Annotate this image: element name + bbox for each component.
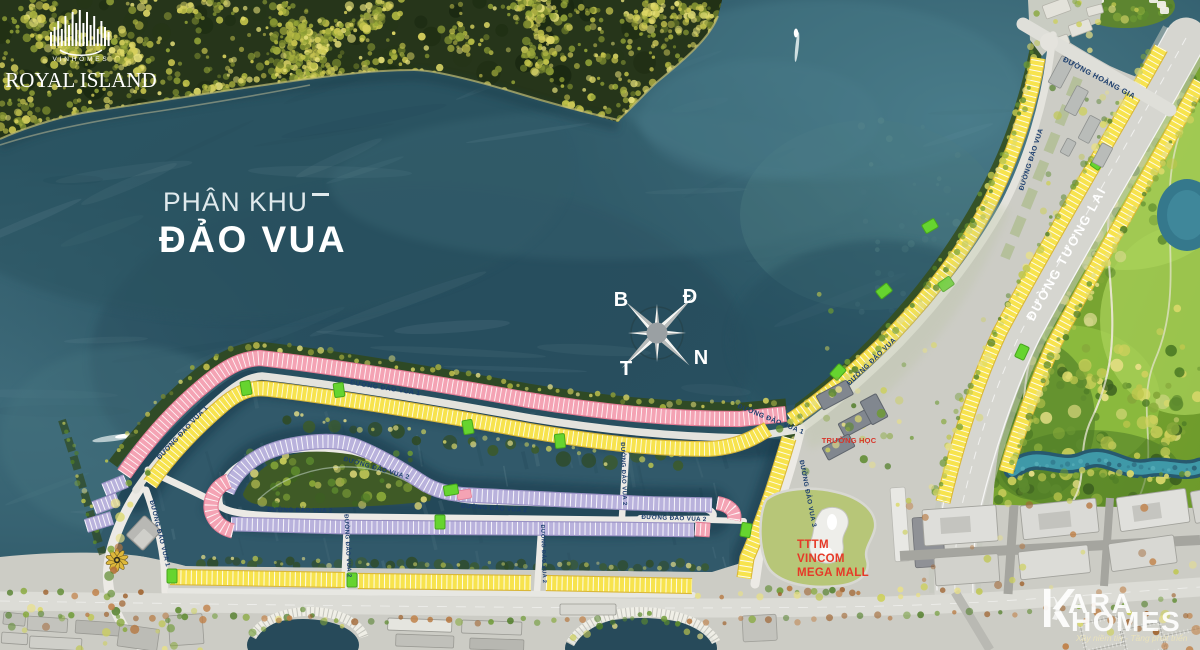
svg-text:N: N (694, 347, 708, 369)
svg-text:Xây niềm tin - Tầng phát triển: Xây niềm tin - Tầng phát triển (1075, 633, 1188, 643)
svg-text:PHÂN KHU: PHÂN KHU (163, 187, 308, 217)
svg-text:B: B (614, 289, 628, 311)
svg-text:Đ: Đ (683, 286, 697, 308)
svg-text:VINCOM: VINCOM (797, 553, 845, 565)
svg-text:ĐẢO VUA: ĐẢO VUA (159, 219, 347, 260)
svg-text:T: T (620, 358, 632, 380)
svg-text:ĐƯỜNG ĐẢO VUA 2: ĐƯỜNG ĐẢO VUA 2 (267, 505, 333, 514)
svg-text:MEGA MALL: MEGA MALL (797, 567, 869, 579)
svg-text:VINHOMES: VINHOMES (52, 56, 109, 63)
svg-text:TTTM: TTTM (797, 539, 829, 551)
svg-text:TRƯỜNG HỌC: TRƯỜNG HỌC (822, 436, 877, 445)
svg-text:ROYAL ISLAND: ROYAL ISLAND (5, 68, 156, 92)
